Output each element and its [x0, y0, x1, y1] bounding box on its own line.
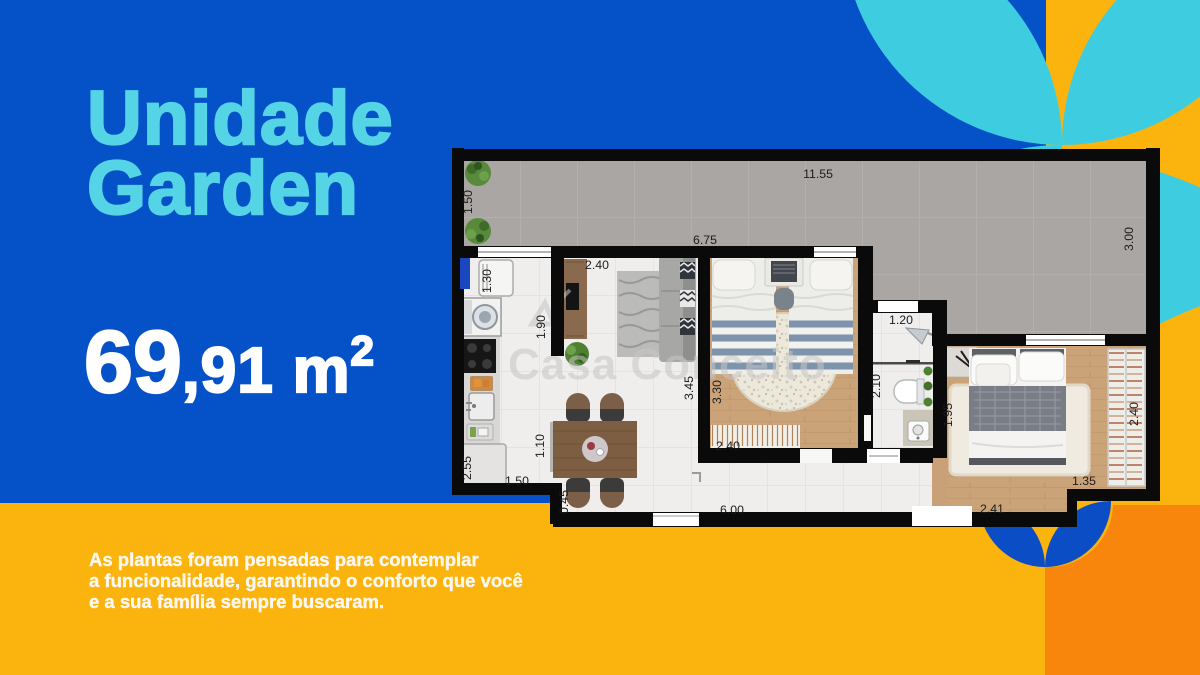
svg-text:2.41: 2.41: [980, 502, 1004, 516]
svg-text:2.40: 2.40: [1127, 402, 1141, 426]
svg-text:1.90: 1.90: [534, 315, 548, 339]
svg-text:6.00: 6.00: [720, 503, 744, 517]
svg-text:11.55: 11.55: [803, 167, 833, 181]
svg-text:1.95: 1.95: [941, 403, 955, 427]
svg-text:2.10: 2.10: [869, 374, 883, 398]
svg-text:3.00: 3.00: [1122, 227, 1136, 251]
svg-text:1.20: 1.20: [889, 313, 913, 327]
svg-text:1.30: 1.30: [480, 269, 494, 293]
svg-text:1.50: 1.50: [461, 190, 475, 214]
svg-text:2.40: 2.40: [716, 439, 740, 453]
svg-text:3.45: 3.45: [682, 376, 696, 400]
svg-text:2.55: 2.55: [460, 456, 474, 480]
svg-text:6.75: 6.75: [693, 233, 717, 247]
svg-text:1.50: 1.50: [505, 474, 529, 488]
svg-text:1.35: 1.35: [1072, 474, 1096, 488]
svg-text:2.40: 2.40: [585, 258, 609, 272]
svg-text:0.45: 0.45: [557, 490, 571, 514]
svg-text:3.30: 3.30: [710, 380, 724, 404]
svg-text:1.10: 1.10: [533, 434, 547, 458]
